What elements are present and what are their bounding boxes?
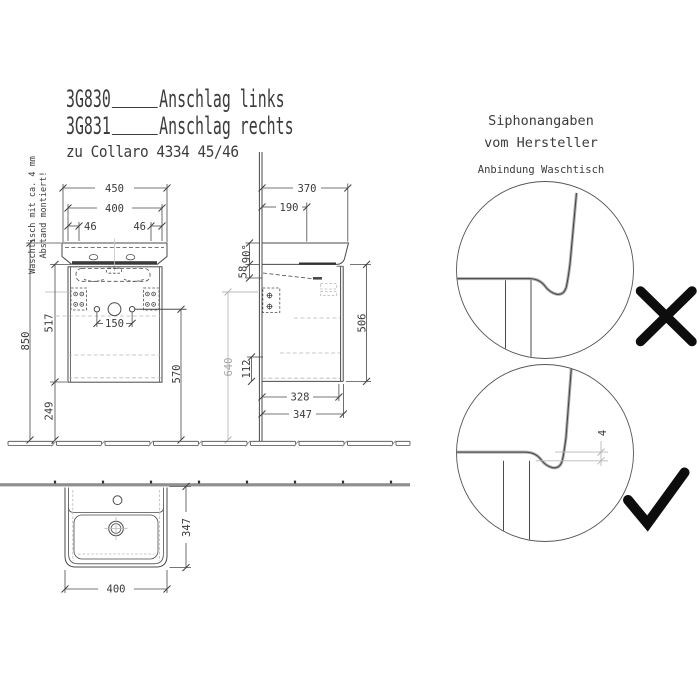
dim-connection-spacing: 150 bbox=[105, 318, 124, 330]
tap-hole bbox=[113, 496, 122, 505]
front-dimensions: 450 400 46 46 850 517 bbox=[20, 183, 258, 444]
dim-gap: 4 bbox=[597, 430, 609, 436]
drawing-canvas: 3G830 Anschlag links 3G831 Anschlag rech… bbox=[0, 0, 700, 700]
siphon-detail-correct: 4 bbox=[455, 365, 685, 542]
front-view: 450 400 46 46 850 517 bbox=[20, 183, 258, 444]
basin-underside-dashed bbox=[76, 269, 150, 282]
plan-dimensions: 347 400 bbox=[62, 483, 194, 596]
mounting-plate-right bbox=[144, 288, 160, 310]
drain-dashed-line bbox=[263, 273, 317, 279]
dim-anchor-left: 46 bbox=[84, 221, 97, 233]
plan-dimension-arrows bbox=[62, 483, 190, 593]
dim-siphon-height: 570 bbox=[171, 365, 183, 384]
dim-cabinet-width: 400 bbox=[105, 203, 124, 215]
drain-recess-dashed bbox=[107, 268, 122, 273]
correct-mark-icon bbox=[628, 473, 685, 524]
valve-hole-right bbox=[129, 307, 134, 312]
dim-plan-depth: 347 bbox=[181, 518, 193, 537]
door-detail-dashed-2 bbox=[321, 292, 337, 296]
floor-line bbox=[8, 441, 410, 447]
dim-total-height: 850 bbox=[20, 332, 32, 351]
dim-basin-edge-height: 90° bbox=[241, 244, 253, 263]
overflow-slot-left bbox=[89, 255, 98, 260]
siphon-detail-wrong bbox=[455, 182, 692, 363]
dim-anchor-right: 46 bbox=[133, 221, 146, 233]
dim-cabinet-height: 517 bbox=[44, 314, 56, 333]
plan-view: 347 400 bbox=[0, 481, 410, 596]
side-dimension-arrows bbox=[246, 185, 370, 418]
dim-basin-depth: 370 bbox=[298, 183, 317, 195]
door-detail-dashed-1 bbox=[321, 284, 337, 290]
siphon-hole bbox=[108, 303, 121, 316]
dim-side-cabinet-height: 506 bbox=[357, 314, 369, 333]
dim-apron-height: 58 bbox=[238, 266, 250, 279]
mounting-plate-side bbox=[263, 288, 280, 313]
basin-side-profile bbox=[262, 243, 349, 264]
dim-reference-height: 640 bbox=[223, 358, 235, 377]
dim-tap-distance: 190 bbox=[280, 202, 299, 214]
dim-body-depth: 328 bbox=[291, 392, 310, 404]
dim-plan-width: 400 bbox=[107, 584, 126, 596]
side-view: 370 190 90° 58 112 506 bbox=[238, 152, 372, 441]
mounting-plate-left bbox=[71, 288, 87, 310]
overflow-slot-right bbox=[126, 255, 135, 260]
plan-wall-line bbox=[0, 483, 410, 486]
plan-wall-ticks bbox=[54, 481, 392, 484]
dim-clearance-below: 249 bbox=[44, 402, 56, 421]
detail-circle-wrong bbox=[457, 182, 634, 359]
valve-hole-left bbox=[94, 307, 99, 312]
dim-basin-width: 450 bbox=[105, 183, 124, 195]
side-dimensions: 370 190 90° 58 112 506 bbox=[238, 183, 372, 421]
technical-drawing: 450 400 46 46 850 517 bbox=[0, 0, 700, 700]
drain-outlet-mark bbox=[313, 277, 322, 280]
dim-rear-clearance: 112 bbox=[241, 360, 253, 379]
basin-deck-line bbox=[69, 508, 164, 512]
wrong-mark-icon bbox=[641, 291, 693, 342]
dim-overall-depth: 347 bbox=[293, 409, 312, 421]
